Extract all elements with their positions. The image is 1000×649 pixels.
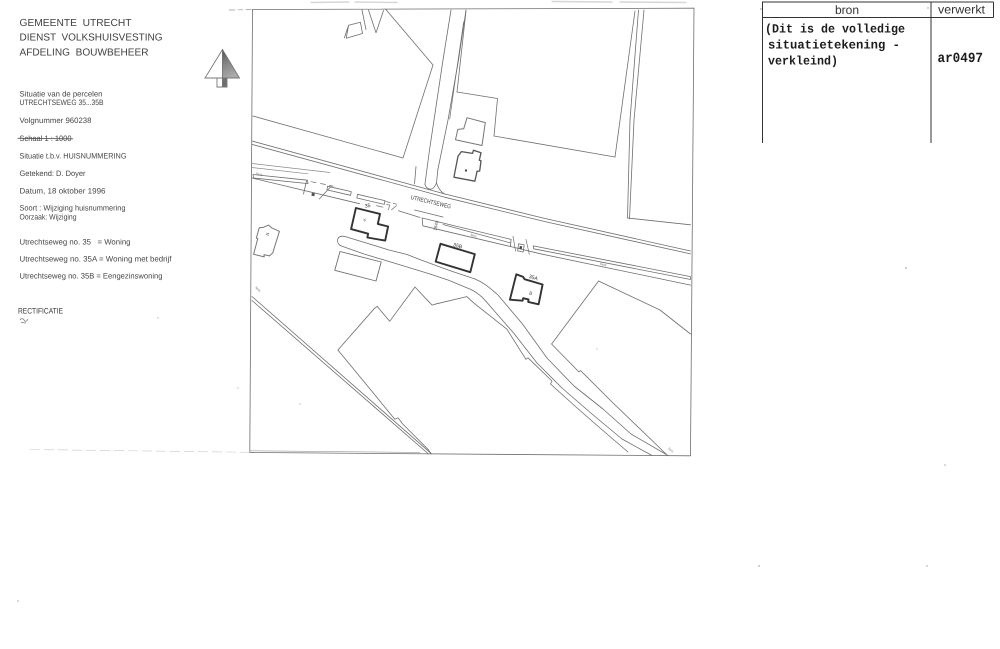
svg-text:ar0497: ar0497 (938, 51, 984, 67)
svg-text:fiets: fiets (667, 447, 674, 454)
svg-text:35: 35 (364, 203, 371, 210)
svg-text:Utrechtseweg no. 35A = Woning: Utrechtseweg no. 35A = Woning met bedrij… (20, 255, 173, 264)
svg-text:fiets: fiets (256, 172, 263, 177)
svg-text:UTRECHTSEWEG 35...35B: UTRECHTSEWEG 35...35B (20, 98, 104, 107)
svg-text:Utrechtseweg no. 35 = Woning: Utrechtseweg no. 35 = Woning (20, 238, 131, 247)
svg-text:(Dit is de volledige: (Dit is de volledige (765, 23, 905, 37)
svg-text:situatietekening -: situatietekening - (768, 39, 900, 53)
svg-text:Utrechtseweg no. 35B = Eengezi: Utrechtseweg no. 35B = Eengezinswoning (20, 272, 163, 281)
svg-text:fiets: fiets (470, 233, 477, 238)
svg-text:bron: bron (835, 3, 859, 17)
svg-text:Volgnummer 960238: Volgnummer 960238 (20, 116, 92, 125)
svg-text:verkleind): verkleind) (768, 55, 838, 69)
svg-text:DIENST VOLKSHUISVESTING: DIENST VOLKSHUISVESTING (20, 33, 163, 44)
svg-text:verwerkt: verwerkt (938, 3, 986, 17)
svg-text:UTRECHTSEWEG: UTRECHTSEWEG (410, 194, 452, 210)
svg-text:Situatie t.b.v. HUISNUMMERING: Situatie t.b.v. HUISNUMMERING (20, 152, 127, 161)
svg-text:RECTIFICATIE: RECTIFICATIE (18, 307, 63, 316)
svg-text:Getekend: D. Doyer: Getekend: D. Doyer (20, 169, 86, 178)
svg-text:B: B (529, 291, 533, 297)
svg-text:GEMEENTE UTRECHT: GEMEENTE UTRECHT (20, 18, 132, 29)
svg-text:Oorzaak: Wijziging: Oorzaak: Wijziging (20, 213, 77, 222)
svg-text:fiets: fiets (254, 286, 262, 293)
svg-text:Soort : Wijziging huisnummerin: Soort : Wijziging huisnummering (20, 204, 126, 213)
svg-text:K: K (363, 217, 367, 222)
svg-text:AFDELING BOUWBEHEER: AFDELING BOUWBEHEER (20, 48, 149, 59)
svg-text:Datum, 18 oktober 1996: Datum, 18 oktober 1996 (20, 187, 106, 196)
